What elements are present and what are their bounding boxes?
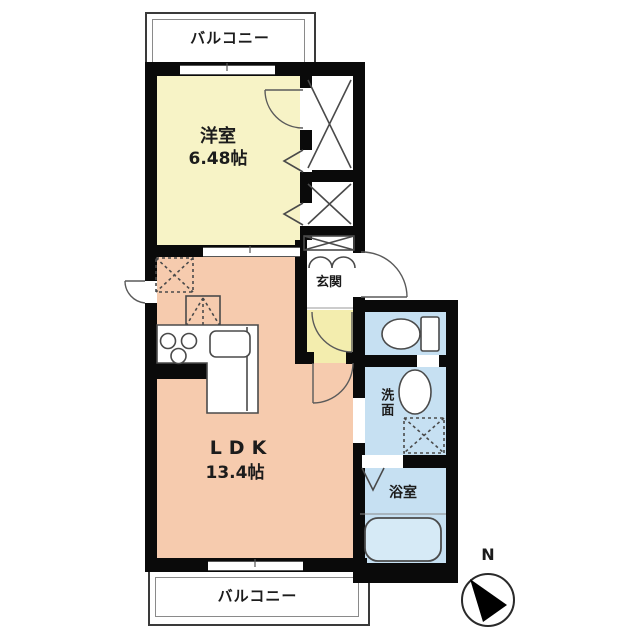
western-room-label: 洋室	[148, 127, 288, 147]
door-service	[125, 281, 145, 303]
western-room-size: 6.48帖	[148, 150, 288, 169]
window-south	[208, 561, 303, 571]
shoe-cabinet-icon	[304, 236, 355, 268]
wall-toilet-washroom	[353, 355, 458, 367]
toilet-room-fill	[360, 308, 448, 360]
floor-plan: バルコニー 洋室 6.48帖 LDK 13.4帖 玄関 洗面 浴室 バルコニー …	[0, 0, 640, 640]
closet-tall-icon	[308, 80, 351, 168]
ldk-size: 13.4帖	[165, 464, 305, 483]
entrance-label: 玄関	[303, 276, 355, 290]
wall-wet-block-right	[446, 300, 458, 583]
ldk-label: LDK	[168, 438, 308, 459]
door-front-entrance	[361, 252, 407, 297]
door-gap-washroom	[353, 398, 365, 443]
closet-opening-2	[300, 203, 312, 226]
compass-north-label: N	[468, 546, 508, 564]
wall-right-column	[353, 62, 365, 583]
balcony-bottom-label: バルコニー	[165, 588, 350, 605]
door-gap-service	[145, 281, 157, 303]
wall-wet-block-bottom	[353, 563, 458, 583]
wall-wet-block-top	[353, 300, 458, 312]
door-gap-front	[353, 253, 365, 297]
compass-icon	[462, 574, 514, 626]
balcony-top-label: バルコニー	[150, 30, 310, 47]
door-gap-toilet	[417, 355, 439, 367]
bathroom-fill	[360, 460, 448, 566]
wall-kitchen-stub	[145, 363, 207, 379]
closet-opening-1	[300, 150, 312, 172]
bathroom-label: 浴室	[363, 486, 443, 501]
room-ldk-fill	[151, 250, 301, 560]
washroom-fill	[360, 360, 448, 460]
window-north	[180, 65, 275, 75]
sliding-door-room-divider	[203, 247, 300, 257]
washroom-label: 洗面	[378, 388, 392, 418]
door-gap-western-room	[300, 88, 312, 130]
door-gap-bathroom	[362, 455, 403, 468]
wall-ldk-entrance	[295, 240, 307, 364]
room-ldk-fill-strip	[301, 363, 361, 560]
closet-square-icon	[308, 184, 351, 224]
wall-hall-stub-left	[300, 352, 314, 364]
